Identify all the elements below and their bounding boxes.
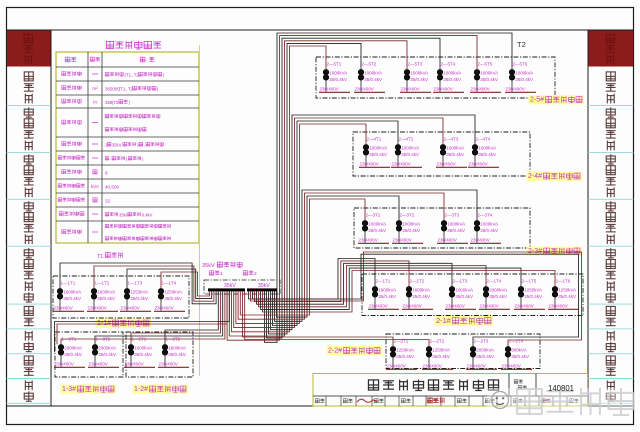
svg-text:1000kVA: 1000kVA: [447, 222, 465, 227]
svg-text:230/400V: 230/400V: [471, 87, 490, 92]
svg-text:230/400V: 230/400V: [54, 306, 73, 311]
svg-text:230/400V: 230/400V: [392, 162, 411, 167]
svg-text:2—4T4: 2—4T4: [476, 137, 491, 142]
svg-text:230/400V: 230/400V: [437, 162, 456, 167]
svg-text:35/0.4kV: 35/0.4kV: [480, 77, 498, 82]
svg-text:35/0.4kV: 35/0.4kV: [524, 294, 542, 299]
svg-text:230/400V: 230/400V: [423, 364, 442, 369]
svg-text:1000kVA: 1000kVA: [480, 222, 498, 227]
svg-text:1250kVA: 1250kVA: [524, 288, 542, 293]
svg-text:35/0.4kV: 35/0.4kV: [98, 352, 116, 357]
svg-text:35/0.4kV: 35/0.4kV: [412, 294, 430, 299]
svg-text:1000kVA: 1000kVA: [364, 71, 382, 76]
svg-text:230/400V: 230/400V: [125, 362, 144, 367]
svg-text:35/0.4kV: 35/0.4kV: [515, 77, 533, 82]
svg-text:1000kVA: 1000kVA: [455, 288, 473, 293]
svg-text:2—3T4: 2—3T4: [478, 213, 493, 218]
svg-text:230/400V: 230/400V: [369, 304, 388, 309]
svg-text:230/400V: 230/400V: [506, 87, 525, 92]
svg-text:35/0.4kV: 35/0.4kV: [368, 228, 386, 233]
svg-text:35/0.4kV: 35/0.4kV: [63, 296, 81, 301]
svg-text:1250kVA: 1250kVA: [432, 348, 450, 353]
svg-text:2000kVA: 2000kVA: [476, 348, 494, 353]
svg-text:230/400V: 230/400V: [121, 306, 140, 311]
svg-text:2—1T4: 2—1T4: [487, 279, 502, 284]
svg-text:1-3#: 1-3#: [62, 386, 76, 393]
svg-text:35/0.4kV: 35/0.4kV: [396, 354, 414, 359]
svg-text:35/0.4kV: 35/0.4kV: [511, 354, 529, 359]
svg-text:1600kVA: 1600kVA: [412, 288, 430, 293]
svg-text:2—5T4: 2—5T4: [441, 62, 456, 67]
svg-text:kVA: kVA: [91, 184, 100, 189]
svg-text:1000kVA: 1000kVA: [443, 71, 461, 76]
svg-text:35/0.4kV: 35/0.4kV: [364, 77, 382, 82]
svg-text:2—1T5: 2—1T5: [522, 279, 537, 284]
svg-text:1000kVA: 1000kVA: [410, 71, 428, 76]
svg-text:2—3T2: 2—3T2: [400, 213, 415, 218]
svg-text:1000kVA: 1000kVA: [329, 71, 347, 76]
svg-text:2—5T1: 2—5T1: [327, 62, 342, 67]
svg-text:230/400V: 230/400V: [320, 87, 339, 92]
svg-text:2-2#: 2-2#: [328, 348, 342, 355]
svg-text:2—5T2: 2—5T2: [362, 62, 377, 67]
svg-text:2—4T3: 2—4T3: [444, 137, 459, 142]
svg-text:2—5T3: 2—5T3: [408, 62, 423, 67]
svg-text:140801: 140801: [548, 384, 574, 393]
svg-text:1000kVA: 1000kVA: [480, 71, 498, 76]
svg-text:,: ,: [131, 72, 132, 77]
svg-text:2000kVA: 2000kVA: [64, 346, 82, 351]
svg-text:35/0.4kV: 35/0.4kV: [401, 152, 419, 157]
svg-text:2—2T2: 2—2T2: [430, 339, 445, 344]
svg-text:1000kVA: 1000kVA: [446, 146, 464, 151]
svg-text:32: 32: [105, 199, 111, 204]
svg-text:1250kVA: 1250kVA: [396, 348, 414, 353]
svg-text:1000kVA: 1000kVA: [369, 146, 387, 151]
svg-text:1—1T1: 1—1T1: [61, 281, 76, 286]
svg-text:1600kVA: 1600kVA: [63, 290, 81, 295]
svg-text:8: 8: [105, 171, 108, 176]
svg-text:1000kVA: 1000kVA: [478, 146, 496, 151]
svg-text:230/400V: 230/400V: [355, 87, 374, 92]
svg-text:1600kVA: 1600kVA: [378, 288, 396, 293]
svg-text:35/0.4kV: 35/0.4kV: [476, 354, 494, 359]
svg-text:230/400V: 230/400V: [88, 306, 107, 311]
svg-text:2-5#: 2-5#: [530, 97, 544, 104]
svg-text:35/0.4kV: 35/0.4kV: [369, 152, 387, 157]
svg-text:230/400V: 230/400V: [155, 306, 174, 311]
svg-text:35/0.4kV: 35/0.4kV: [489, 294, 507, 299]
svg-text:T2: T2: [517, 40, 526, 49]
svg-text:35/0.4kV: 35/0.4kV: [97, 296, 115, 301]
svg-text:35/0.4kV: 35/0.4kV: [168, 352, 186, 357]
svg-text:35kV: 35kV: [119, 212, 129, 217]
svg-text:35/0.4kV: 35/0.4kV: [455, 294, 473, 299]
svg-text:1250kVA: 1250kVA: [558, 288, 576, 293]
svg-text:m: m: [93, 99, 97, 104]
svg-text:,: ,: [126, 86, 127, 91]
svg-text:230/400V: 230/400V: [438, 238, 457, 243]
svg-text:1—1T3: 1—1T3: [128, 281, 143, 286]
svg-text:1-2#: 1-2#: [134, 386, 148, 393]
svg-text:2: 2: [254, 271, 257, 277]
svg-text:1600kVA: 1600kVA: [168, 346, 186, 351]
svg-text:0.4kV: 0.4kV: [142, 212, 153, 217]
svg-text:35kV: 35kV: [258, 283, 270, 289]
svg-text:230/400V: 230/400V: [360, 162, 379, 167]
svg-text:230/400V: 230/400V: [446, 304, 465, 309]
svg-text:2—1T3: 2—1T3: [453, 279, 468, 284]
svg-text:1: 1: [220, 271, 223, 277]
svg-text:230/400V: 230/400V: [387, 364, 406, 369]
svg-text:2000kVA: 2000kVA: [489, 288, 507, 293]
svg-text:1—1T2: 1—1T2: [95, 281, 110, 286]
svg-text:1000kVA: 1000kVA: [368, 222, 386, 227]
svg-text:230/400V: 230/400V: [469, 162, 488, 167]
svg-text:35/0.4kV: 35/0.4kV: [558, 294, 576, 299]
svg-text:230/400V: 230/400V: [502, 364, 521, 369]
svg-text:230/400V: 230/400V: [89, 362, 108, 367]
svg-text:230/400V: 230/400V: [159, 362, 178, 367]
svg-text:230/400V: 230/400V: [467, 364, 486, 369]
svg-text:35kV: 35kV: [202, 263, 215, 269]
svg-text:2-4#: 2-4#: [528, 173, 542, 180]
svg-text:35/0.4kV: 35/0.4kV: [130, 296, 148, 301]
svg-text:230/400V: 230/400V: [393, 238, 412, 243]
svg-text:1000kVA: 1000kVA: [515, 71, 533, 76]
svg-text:1—1T4: 1—1T4: [162, 281, 177, 286]
svg-text:230/400V: 230/400V: [471, 238, 490, 243]
svg-text:35/0.4kV: 35/0.4kV: [410, 77, 428, 82]
svg-text:2000kVA: 2000kVA: [98, 346, 116, 351]
svg-text:2—4T2: 2—4T2: [399, 137, 414, 142]
svg-text:35/0.4kV: 35/0.4kV: [446, 152, 464, 157]
svg-text:1000kVA: 1000kVA: [401, 146, 419, 151]
svg-text:230/400V: 230/400V: [434, 87, 453, 92]
svg-text:800kVA: 800kVA: [511, 348, 526, 353]
svg-text:1000kVA: 1000kVA: [402, 222, 420, 227]
svg-text:2—5T5: 2—5T5: [478, 62, 493, 67]
svg-text:1250kVA: 1250kVA: [130, 290, 148, 295]
svg-text:2—3T1: 2—3T1: [366, 213, 381, 218]
svg-text:35/0.4kV: 35/0.4kV: [443, 77, 461, 82]
svg-text:35kV: 35kV: [224, 283, 236, 289]
svg-text:T1: T1: [97, 254, 103, 260]
svg-text:230/400V: 230/400V: [359, 238, 378, 243]
svg-text:35/0.4kV: 35/0.4kV: [378, 294, 396, 299]
svg-text:35/0.4kV: 35/0.4kV: [447, 228, 465, 233]
svg-text:35/0.4kV: 35/0.4kV: [329, 77, 347, 82]
svg-text:35/0.4kV: 35/0.4kV: [134, 352, 152, 357]
svg-text:35/0.4kV: 35/0.4kV: [64, 352, 82, 357]
svg-text:1250kVA: 1250kVA: [164, 290, 182, 295]
svg-text:35/0.4kV: 35/0.4kV: [478, 152, 496, 157]
svg-text:35/0.4kV: 35/0.4kV: [480, 228, 498, 233]
svg-text:,: ,: [121, 142, 122, 147]
svg-text:230/400V: 230/400V: [55, 362, 74, 367]
svg-text:230/400V: 230/400V: [401, 87, 420, 92]
svg-text:1600kVA: 1600kVA: [134, 346, 152, 351]
svg-text:2—4T1: 2—4T1: [367, 137, 382, 142]
svg-text:230/400V: 230/400V: [515, 304, 534, 309]
svg-text:2—1T2: 2—1T2: [410, 279, 425, 284]
svg-text:40,500: 40,500: [105, 185, 119, 190]
svg-text:35/0.4kV: 35/0.4kV: [432, 354, 450, 359]
svg-text:230/400V: 230/400V: [480, 304, 499, 309]
svg-text:35/0.4kV: 35/0.4kV: [402, 228, 420, 233]
svg-text:2—2T3: 2—2T3: [474, 339, 489, 344]
svg-text:35/0.4kV: 35/0.4kV: [164, 296, 182, 301]
svg-text:2—3T3: 2—3T3: [445, 213, 460, 218]
svg-text:2—5T6: 2—5T6: [513, 62, 528, 67]
svg-text:230/400V: 230/400V: [403, 304, 422, 309]
svg-text:m²: m²: [92, 86, 98, 91]
svg-text:,: ,: [144, 142, 145, 147]
svg-text:1600kVA: 1600kVA: [97, 290, 115, 295]
svg-text:230/400V: 230/400V: [549, 304, 568, 309]
svg-text:2-1#: 2-1#: [436, 316, 452, 325]
svg-text:2—1T6: 2—1T6: [556, 279, 571, 284]
svg-text:2—2T4: 2—2T4: [509, 339, 524, 344]
svg-text:2—1T1: 2—1T1: [376, 279, 391, 284]
svg-text:(T2: (T2: [112, 100, 119, 105]
